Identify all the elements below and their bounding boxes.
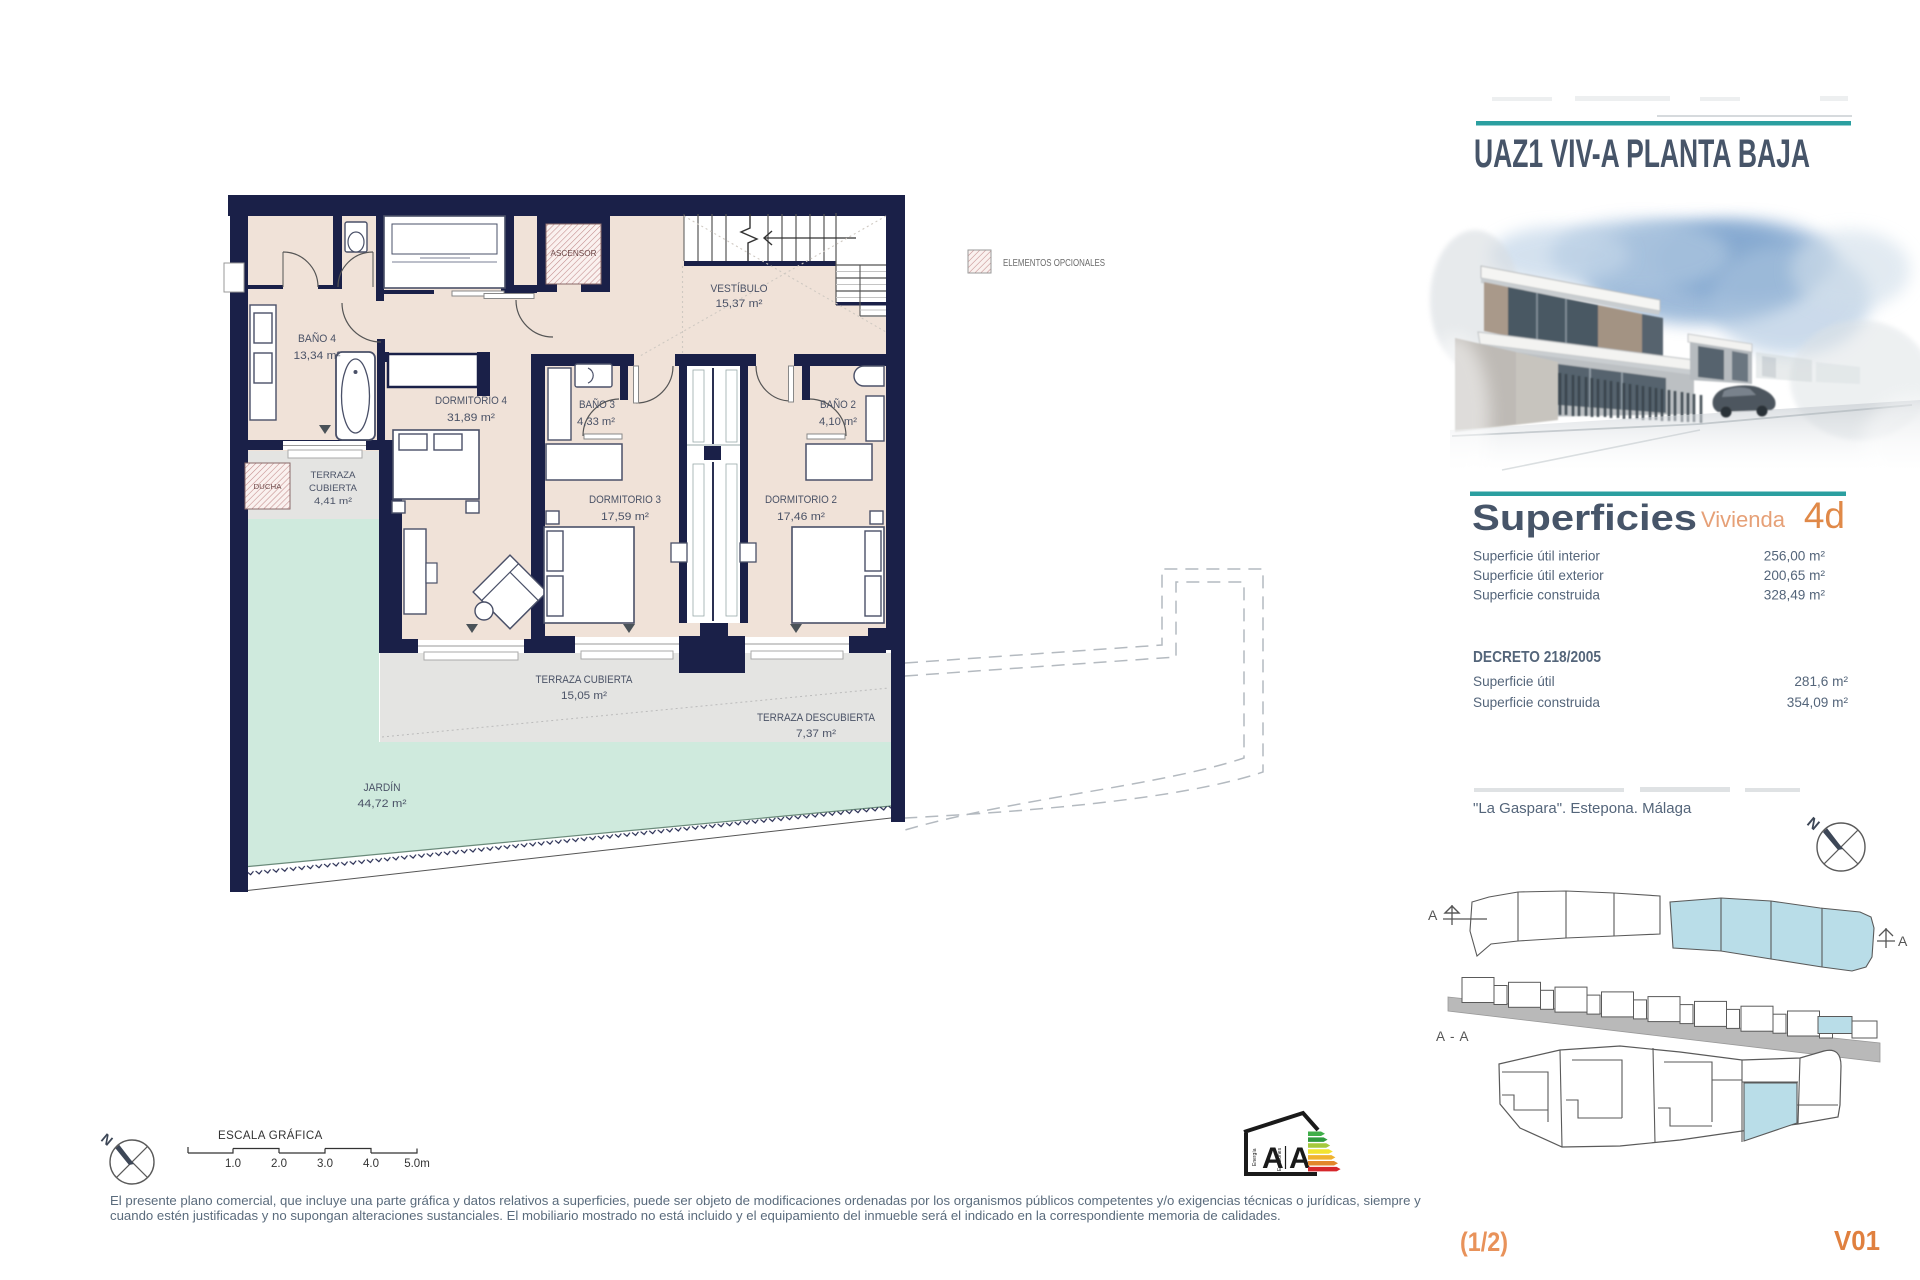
svg-text:4,33 m²: 4,33 m² <box>577 416 615 428</box>
svg-text:BAÑO 4: BAÑO 4 <box>298 332 336 345</box>
svg-text:Superficie construida: Superficie construida <box>1473 588 1600 603</box>
svg-text:44,72 m²: 44,72 m² <box>358 798 407 810</box>
svg-text:DORMITORIO 3: DORMITORIO 3 <box>589 494 661 506</box>
svg-text:DUCHA: DUCHA <box>254 482 282 491</box>
svg-text:Vivienda: Vivienda <box>1701 507 1786 532</box>
svg-text:A: A <box>1898 933 1908 949</box>
svg-text:31,89 m²: 31,89 m² <box>447 412 495 424</box>
svg-text:Superficie útil exterior: Superficie útil exterior <box>1473 568 1604 583</box>
svg-text:15,37 m²: 15,37 m² <box>716 298 763 310</box>
svg-text:281,6 m²: 281,6 m² <box>1794 674 1848 689</box>
svg-text:TERRAZA: TERRAZA <box>311 470 357 481</box>
svg-text:BAÑO 3: BAÑO 3 <box>579 398 615 411</box>
svg-text:"La Gaspara". Estepona. Málaga: "La Gaspara". Estepona. Málaga <box>1473 800 1692 817</box>
svg-text:CUBIERTA: CUBIERTA <box>309 483 358 494</box>
svg-text:El presente plano comercial, q: El presente plano comercial, que incluye… <box>110 1193 1421 1208</box>
svg-text:3.0: 3.0 <box>317 1158 333 1170</box>
svg-text:Superficie construida: Superficie construida <box>1473 695 1600 710</box>
svg-text:TERRAZA DESCUBIERTA: TERRAZA DESCUBIERTA <box>757 712 876 724</box>
svg-text:1.0: 1.0 <box>225 1158 241 1170</box>
svg-text:(1/2): (1/2) <box>1460 1227 1508 1257</box>
svg-text:A: A <box>1428 907 1438 923</box>
svg-text:Emisiones: Emisiones <box>1277 1147 1283 1171</box>
svg-text:17,46 m²: 17,46 m² <box>777 511 825 523</box>
svg-text:7,37 m²: 7,37 m² <box>796 728 836 740</box>
svg-text:V01: V01 <box>1834 1225 1880 1256</box>
svg-text:2.0: 2.0 <box>271 1158 287 1170</box>
svg-text:cuando estén justificadas y no: cuando estén justificadas y no supongan … <box>110 1208 1281 1223</box>
svg-text:15,05 m²: 15,05 m² <box>561 690 607 702</box>
svg-text:4.0: 4.0 <box>363 1158 379 1170</box>
svg-text:ESCALA GRÁFICA: ESCALA GRÁFICA <box>218 1129 323 1142</box>
svg-text:UAZ1 VIV-A PLANTA BAJA: UAZ1 VIV-A PLANTA BAJA <box>1474 132 1810 176</box>
svg-text:4,10 m²: 4,10 m² <box>819 416 857 428</box>
svg-text:Superficie útil: Superficie útil <box>1473 674 1555 689</box>
svg-text:13,34 m²: 13,34 m² <box>294 350 341 362</box>
svg-text:Energía: Energía <box>1252 1148 1258 1166</box>
svg-text:ELEMENTOS OPCIONALES: ELEMENTOS OPCIONALES <box>1003 258 1105 269</box>
svg-text:A: A <box>1289 1142 1311 1175</box>
svg-text:TERRAZA CUBIERTA: TERRAZA CUBIERTA <box>536 674 634 686</box>
svg-text:4d: 4d <box>1804 495 1845 536</box>
svg-text:JARDÍN: JARDÍN <box>364 781 401 794</box>
svg-text:DORMITORIO 2: DORMITORIO 2 <box>765 494 837 506</box>
svg-text:5.0m: 5.0m <box>404 1158 430 1170</box>
svg-text:DORMITORIO 4: DORMITORIO 4 <box>435 395 507 407</box>
svg-text:256,00 m²: 256,00 m² <box>1764 549 1826 564</box>
svg-text:Superficie útil interior: Superficie útil interior <box>1473 549 1600 564</box>
svg-text:DECRETO 218/2005: DECRETO 218/2005 <box>1473 649 1601 666</box>
svg-text:200,65 m²: 200,65 m² <box>1764 568 1826 583</box>
svg-text:17,59 m²: 17,59 m² <box>601 511 649 523</box>
svg-text:354,09 m²: 354,09 m² <box>1787 695 1849 710</box>
svg-text:A - A: A - A <box>1436 1029 1470 1044</box>
svg-text:VESTÍBULO: VESTÍBULO <box>711 282 768 295</box>
svg-text:4,41 m²: 4,41 m² <box>314 496 352 507</box>
svg-text:BAÑO 2: BAÑO 2 <box>820 398 856 411</box>
svg-text:ASCENSOR: ASCENSOR <box>551 249 597 258</box>
svg-text:Superficies: Superficies <box>1472 497 1697 538</box>
svg-text:328,49 m²: 328,49 m² <box>1764 588 1826 603</box>
